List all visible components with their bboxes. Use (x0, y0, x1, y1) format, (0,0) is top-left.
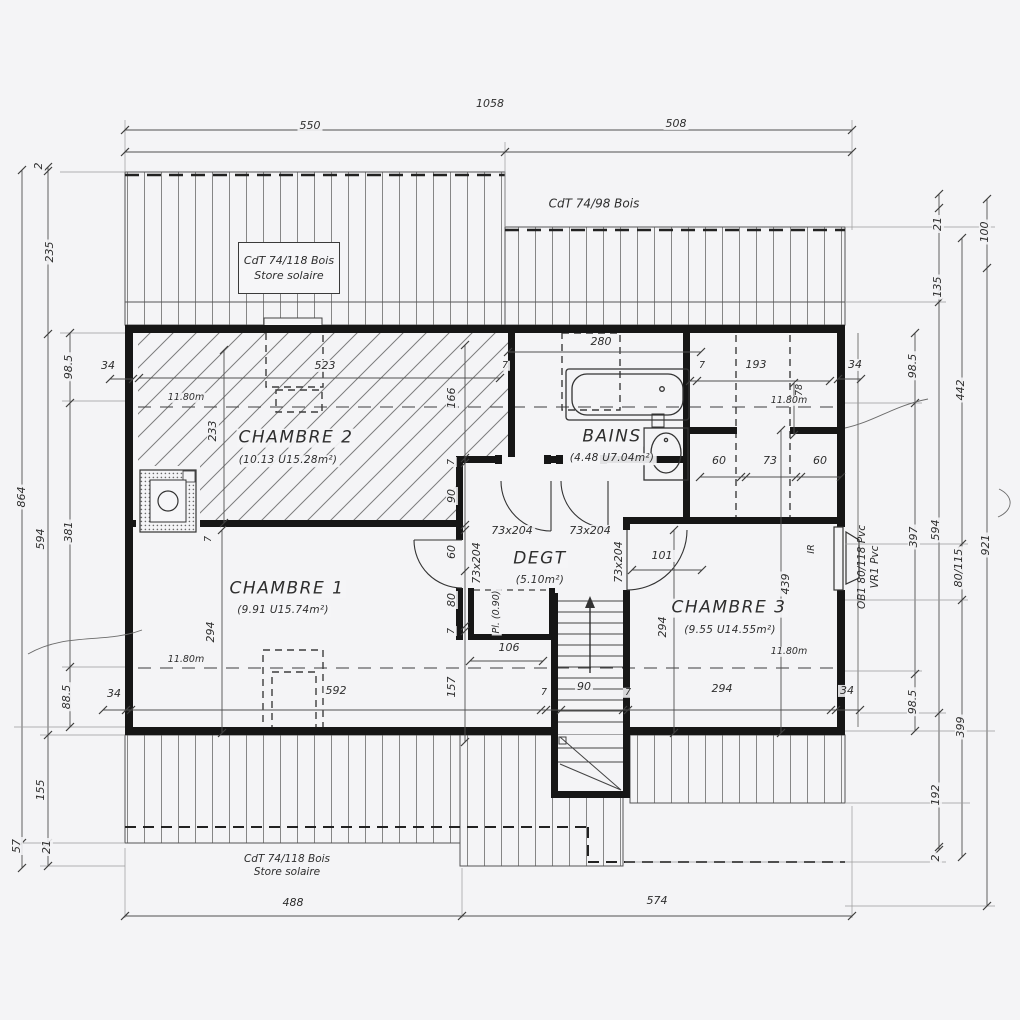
stairs-up-arrow (585, 596, 595, 608)
height-line-label-tl: 11.80m (166, 393, 206, 403)
dim-166: 166 (446, 386, 458, 411)
washbasin (644, 414, 688, 480)
height-line-label-bl: 11.80m (166, 655, 206, 665)
dim-left-21: 21 (41, 838, 53, 856)
dim-left-total: 864 (16, 485, 28, 510)
dim-top-total: 1058 (474, 98, 506, 110)
dim-left-235: 235 (44, 240, 56, 265)
dim-592: 592 (324, 685, 349, 697)
roof-note-top-left-line1: CdT 74/118 Bois (239, 254, 339, 267)
door-arc-bains-right (561, 481, 608, 528)
dim-right-985b: 98.5 (907, 688, 919, 717)
roof-note-bottom: CdT 74/118 Bois Store solaire (242, 854, 332, 878)
room-chambre1-name: CHAMBRE 1 (228, 580, 347, 599)
dim-right-399: 399 (955, 715, 967, 740)
dim-294-bottom: 294 (710, 683, 735, 695)
room-bains-area: (4.48 U7.04m²) (568, 453, 657, 465)
room-chambre2-area: (10.13 U15.28m²) (237, 455, 340, 467)
door-label-bains-left: 73x204 (489, 525, 535, 537)
dim-right-80115: 80/115 (953, 547, 965, 590)
window-note-line2: VR1 Pvc (870, 546, 882, 589)
room-degt-area: (5.10m²) (514, 575, 566, 587)
dim-right-594: 594 (930, 518, 942, 543)
dim-wall-34-botright: 34 (838, 685, 856, 697)
room-chambre2-name: CHAMBRE 2 (237, 429, 356, 448)
dim-left-57: 57 (11, 837, 23, 855)
dim-60b: 60 (811, 455, 829, 467)
dim-wall-34-topleft: 34 (99, 360, 117, 372)
dim-7-stair-left: 7 (539, 688, 549, 698)
dim-106: 106 (497, 642, 522, 654)
room-bains-name: BAINS (580, 428, 643, 447)
dim-left-155: 155 (35, 778, 47, 803)
dim-right-921: 921 (980, 533, 992, 558)
dim-c2-width: 523 (313, 360, 338, 372)
room-degt-name: DEGT (511, 550, 568, 569)
door-label-chambre3: 73x204 (613, 539, 625, 585)
dim-right-442: 442 (955, 378, 967, 403)
chimney (136, 466, 200, 536)
dim-7-mid-a: 7 (447, 457, 457, 467)
dim-7-c2-bottom: 7 (204, 534, 214, 544)
dim-7-mid-b: 7 (447, 626, 457, 636)
room-placard-label: Pl. (0.90) (492, 589, 502, 636)
dim-c3-294: 294 (657, 615, 669, 640)
dim-60v: 60 (446, 543, 458, 561)
stairs (558, 596, 623, 791)
dim-right-985a: 98.5 (907, 352, 919, 381)
dim-right-192: 192 (930, 783, 942, 808)
dim-wall-34-topright: 34 (846, 359, 864, 371)
roof-note-top-right: CdT 74/98 Bois (547, 197, 642, 210)
dim-7-bains-wall: 7 (500, 361, 510, 371)
dim-wall-34-botleft: 34 (105, 688, 123, 700)
dim-157: 157 (446, 675, 458, 700)
dim-right-2: 2 (930, 853, 942, 864)
dim-101: 101 (650, 550, 675, 562)
dim-right-397: 397 (908, 525, 920, 550)
dim-left-985: 98.5 (63, 353, 75, 382)
dim-c3-439: 439 (780, 572, 792, 597)
dim-c2-height: 233 (207, 419, 219, 444)
window-note: OB1 80/118 Pvc VR1 Pvc (857, 523, 881, 611)
dim-c1-294: 294 (205, 620, 217, 645)
room-chambre1-area: (9.91 U15.74m²) (235, 605, 331, 617)
dim-73: 73 (761, 455, 779, 467)
dim-top-left: 550 (298, 120, 323, 132)
dim-left-2: 2 (33, 161, 45, 172)
dim-right-135: 135 (932, 275, 944, 300)
dim-right-100: 100 (979, 220, 991, 245)
dim-left-594: 594 (35, 527, 47, 552)
dim-top-right: 508 (664, 118, 689, 130)
window-ir-label: IR (807, 542, 817, 555)
height-line-label-br: 11.80m (769, 647, 809, 657)
dim-90-stair: 90 (575, 681, 593, 693)
door-label-bains-right: 73x204 (567, 525, 613, 537)
window-note-line1: OB1 80/118 Pvc (857, 525, 869, 609)
room-chambre3-name: CHAMBRE 3 (670, 599, 789, 618)
dim-90v: 90 (446, 487, 458, 505)
roof-note-top-left-box: CdT 74/118 Bois Store solaire (238, 242, 340, 294)
dim-left-381: 381 (63, 520, 75, 545)
dim-80v: 80 (446, 591, 458, 609)
roof-note-bottom-line2: Store solaire (254, 867, 320, 879)
dim-left-885: 88.5 (61, 683, 73, 712)
roof-note-top-left-line2: Store solaire (239, 269, 339, 282)
bathtub (566, 369, 689, 420)
room-chambre3-area: (9.55 U14.55m²) (682, 625, 778, 637)
dim-7-stair-right: 7 (623, 688, 633, 698)
dim-bottom-right: 574 (645, 895, 670, 907)
dim-280: 280 (589, 336, 614, 348)
dim-193: 193 (744, 359, 769, 371)
height-line-label-tr: 11.80m (769, 396, 809, 406)
roof-note-bottom-line1: CdT 74/118 Bois (244, 854, 330, 866)
plan-linework (0, 0, 1020, 1020)
roof-band-top-right (505, 227, 845, 325)
dim-60a: 60 (710, 455, 728, 467)
floor-plan: 1058 550 508 488 574 864 57 2 235 594 15… (0, 0, 1020, 1020)
roof-band-bottom (125, 735, 845, 866)
dim-7-right-top: 7 (697, 361, 707, 371)
door-label-chambre1: 73x204 (471, 540, 483, 586)
dim-bottom-left: 488 (281, 897, 306, 909)
dim-right-21: 21 (932, 215, 944, 233)
